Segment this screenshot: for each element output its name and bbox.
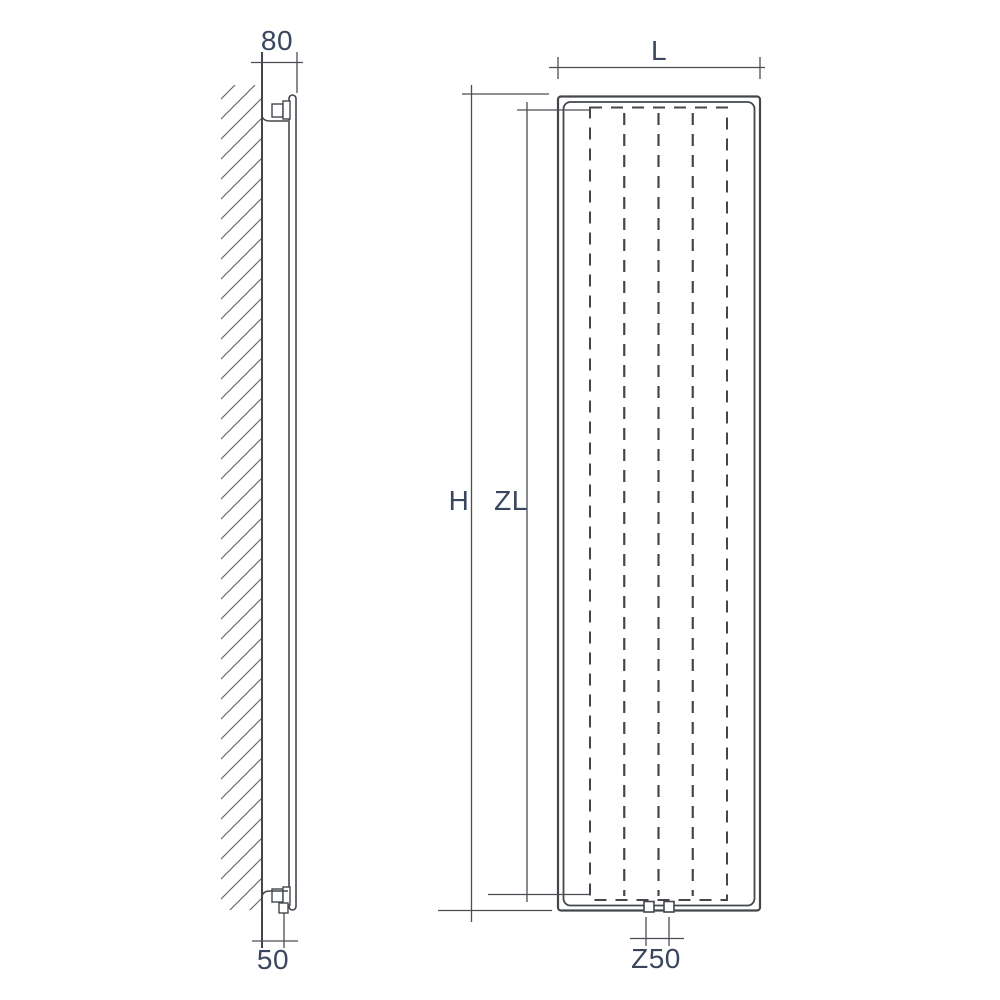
wall-hatching xyxy=(221,85,262,910)
radiator-side-profile xyxy=(289,95,296,910)
dimension-label-H: H xyxy=(449,485,470,516)
dimension-label-L: L xyxy=(651,35,667,66)
dimension-Z50: Z50 xyxy=(630,917,684,974)
pipe-stub-side xyxy=(279,903,288,913)
technical-drawing-page: 80 50 xyxy=(0,0,1000,1000)
dimension-label-50: 50 xyxy=(257,944,289,975)
pipe-connection-left xyxy=(644,902,654,913)
dimension-label-ZL: ZL xyxy=(494,485,528,516)
dimension-L: L xyxy=(549,35,765,79)
dimension-50: 50 xyxy=(252,913,298,975)
mounting-bracket-top xyxy=(262,101,290,121)
drawing-canvas: 80 50 xyxy=(0,0,1000,1000)
bracket-block xyxy=(272,104,283,117)
mounting-bracket-bottom xyxy=(262,887,290,905)
pipe-connection-right xyxy=(664,902,674,913)
bracket-clip xyxy=(283,101,290,119)
dimension-label-80: 80 xyxy=(261,25,293,56)
front-view: L H ZL Z50 xyxy=(438,35,765,974)
side-view: 80 50 xyxy=(221,25,303,975)
bracket-clip xyxy=(283,887,290,905)
dimension-80: 80 xyxy=(251,25,303,93)
dimension-label-Z50: Z50 xyxy=(631,943,681,974)
